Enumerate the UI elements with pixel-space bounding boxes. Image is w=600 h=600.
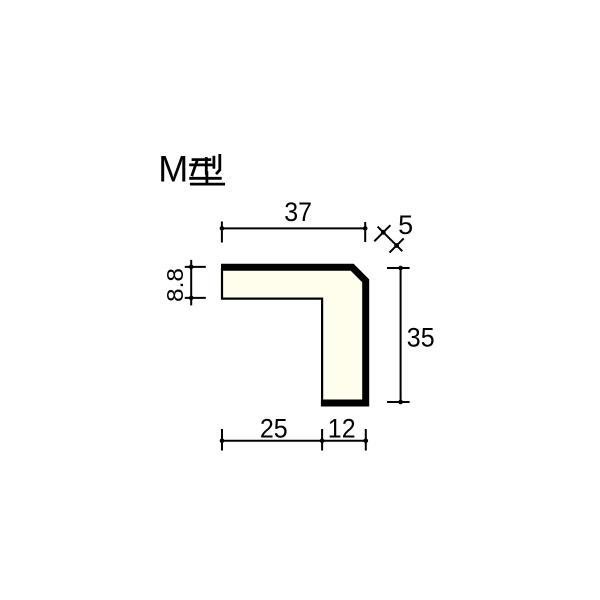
svg-text:M: M bbox=[158, 148, 188, 190]
svg-text:12: 12 bbox=[328, 414, 356, 444]
svg-text:35: 35 bbox=[407, 322, 435, 352]
svg-text:25: 25 bbox=[260, 414, 288, 444]
svg-text:5: 5 bbox=[398, 210, 413, 240]
svg-text:8.8: 8.8 bbox=[162, 268, 188, 302]
svg-text:37: 37 bbox=[284, 197, 312, 227]
